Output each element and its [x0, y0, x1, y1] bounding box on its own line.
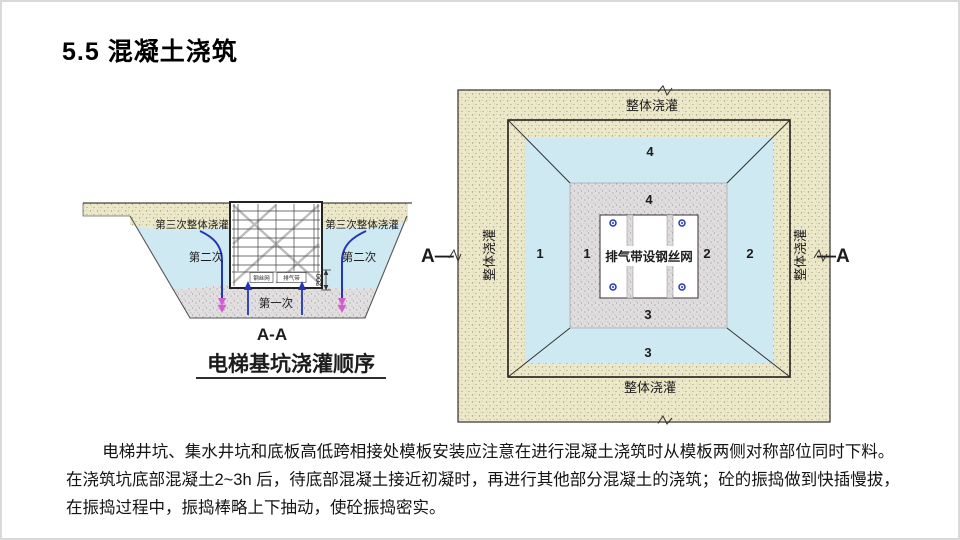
section-cut-right: —A	[817, 246, 850, 267]
label-second-pour-left: 第二次	[189, 250, 224, 264]
label-third-pour-left: 第三次整体浇灌	[155, 218, 229, 231]
vent-strip-label: 排气带设钢丝网	[605, 249, 693, 264]
paragraph-line-1: 电梯井坑、集水井坑和底板高低跨相接处模板安装应注意在进行混凝土浇筑时从模板两侧对…	[66, 438, 900, 466]
zone-3-inner: 3	[644, 307, 651, 322]
body-paragraph: 电梯井坑、集水井坑和底板高低跨相接处模板安装应注意在进行混凝土浇筑时从模板两侧对…	[66, 438, 900, 522]
paragraph-line-3: 在振捣过程中，振捣棒略上下抽动，使砼振捣密实。	[66, 494, 900, 522]
section-diagram: 钢丝网 排气带 200 第三次整体浇灌 第三次整体浇灌 第二次 第二次 第一次 …	[75, 195, 420, 385]
plan-diagram: 排气带设钢丝网 1 1 2 2 4 4 3 3 整体浇灌 整体浇灌 整体浇灌 整…	[415, 85, 860, 425]
pour-label-right: 整体浇灌	[793, 229, 808, 281]
section-cut-left: A—	[421, 246, 454, 267]
label-third-pour-right: 第三次整体浇灌	[325, 218, 399, 231]
diagram-caption: 电梯基坑浇灌顺序	[207, 352, 375, 376]
zone-2-outer: 2	[746, 246, 753, 261]
zone-1-outer: 1	[536, 246, 543, 261]
label-first-pour: 第一次	[259, 296, 294, 310]
formwork-mesh-label: 钢丝网	[253, 274, 270, 282]
page-title: 5.5 混凝土浇筑	[62, 32, 238, 68]
pour-label-bottom: 整体浇灌	[624, 380, 676, 395]
formwork-vent-label: 排气带	[283, 274, 300, 282]
zone-1-inner: 1	[583, 246, 590, 261]
zone-2-inner: 2	[703, 246, 710, 261]
paragraph-line-2: 在浇筑坑底部混凝土2~3h 后，待底部混凝土接近初凝时，再进行其他部分混凝土的浇…	[66, 466, 900, 494]
zone-4-outer: 4	[646, 144, 654, 159]
zone-4-inner: 4	[645, 192, 653, 207]
pour-label-top: 整体浇灌	[626, 98, 678, 113]
label-second-pour-right: 第二次	[342, 250, 377, 264]
vent-strip-box: 排气带设钢丝网	[600, 215, 698, 298]
zone-3-outer: 3	[644, 345, 651, 360]
formwork: 钢丝网 排气带	[230, 202, 322, 288]
svg-text:200: 200	[314, 274, 323, 287]
section-mark: A-A	[257, 325, 287, 344]
pour-label-left: 整体浇灌	[482, 229, 497, 281]
